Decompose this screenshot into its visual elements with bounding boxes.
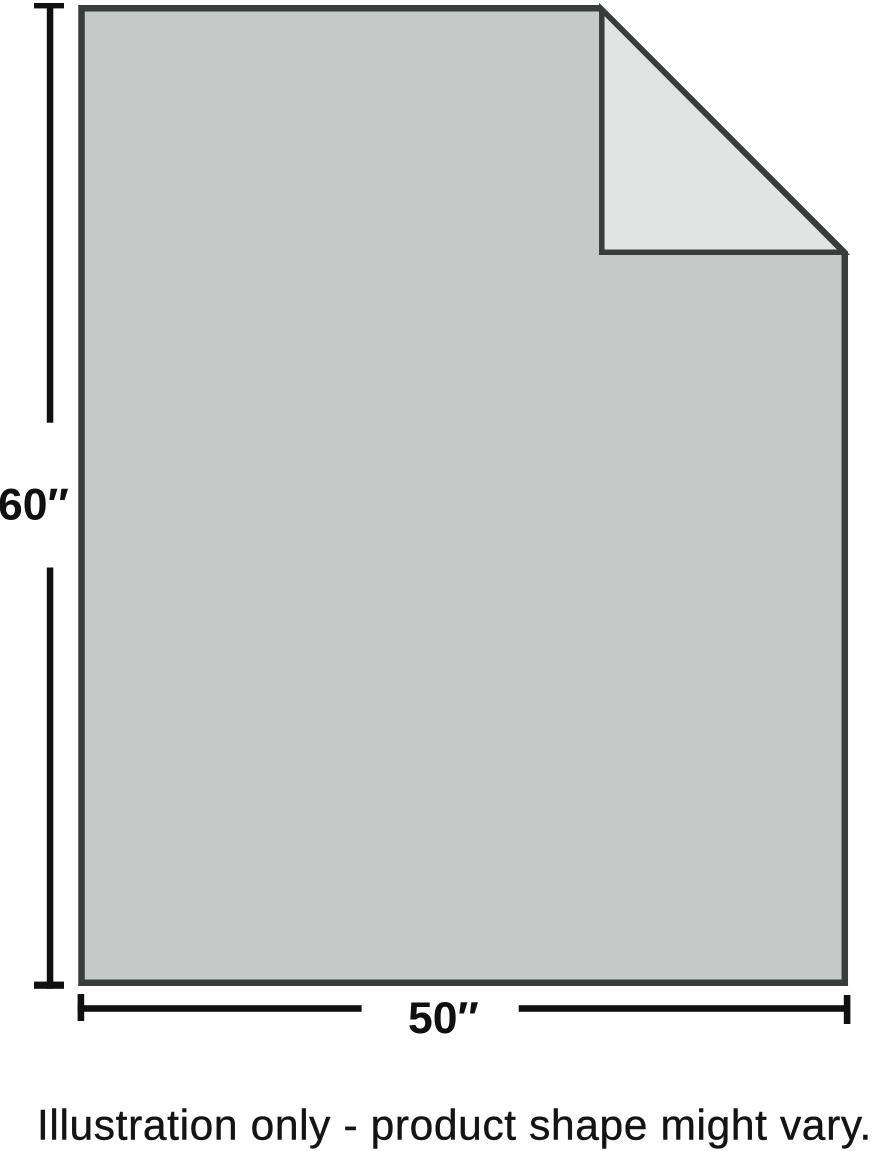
svg-text:50″: 50″ (408, 994, 479, 1043)
svg-text:60″: 60″ (0, 481, 69, 530)
svg-text:Illustration only - product sh: Illustration only - product shape might … (37, 1103, 872, 1150)
